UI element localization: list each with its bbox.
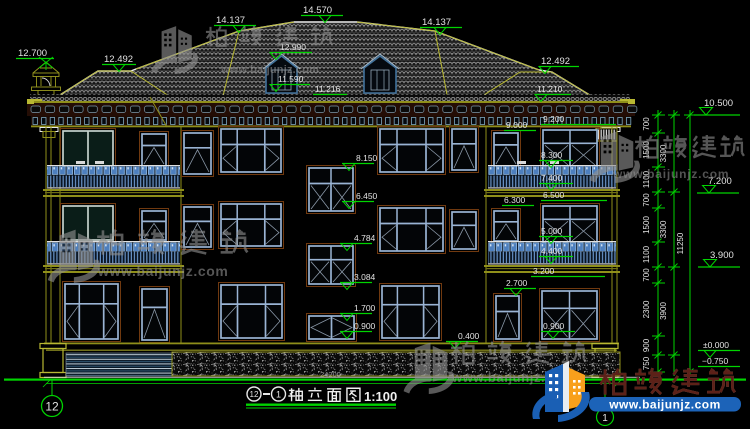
svg-text:12: 12: [45, 400, 59, 414]
svg-text:1100: 1100: [642, 245, 651, 263]
svg-text:12: 12: [250, 390, 259, 399]
svg-text:11.210: 11.210: [537, 84, 563, 94]
svg-text:5.000: 5.000: [541, 226, 563, 236]
svg-text:700: 700: [642, 193, 651, 207]
svg-text:www.baijunjz.com: www.baijunjz.com: [220, 64, 319, 76]
svg-text:3900: 3900: [659, 302, 668, 320]
svg-text:1:100: 1:100: [364, 389, 397, 404]
svg-text:0.900: 0.900: [543, 321, 565, 331]
svg-text:750: 750: [642, 356, 651, 370]
svg-text:11250: 11250: [676, 232, 685, 254]
svg-text:12.492: 12.492: [104, 54, 133, 65]
svg-text:14.570: 14.570: [303, 5, 332, 16]
svg-text:4.400: 4.400: [541, 246, 563, 256]
svg-text:3.084: 3.084: [354, 272, 376, 282]
svg-text:1: 1: [276, 390, 281, 400]
svg-text:12.700: 12.700: [18, 48, 47, 59]
svg-text:−0.750: −0.750: [702, 356, 729, 366]
svg-text:900: 900: [642, 338, 651, 352]
svg-text:700: 700: [642, 268, 651, 282]
svg-text:2300: 2300: [642, 300, 651, 318]
svg-text:11.216: 11.216: [315, 84, 341, 94]
svg-text:8.300: 8.300: [541, 150, 563, 160]
svg-text:1.700: 1.700: [354, 303, 376, 313]
svg-text:700: 700: [642, 117, 651, 131]
svg-text:9.000: 9.000: [506, 120, 528, 130]
svg-text:0.900: 0.900: [354, 321, 376, 331]
svg-text:www.baijunjz.com: www.baijunjz.com: [608, 398, 721, 412]
svg-text:2.700: 2.700: [506, 278, 528, 288]
svg-text:14.137: 14.137: [216, 15, 245, 26]
svg-text:7.400: 7.400: [541, 173, 563, 183]
svg-text:9.200: 9.200: [543, 114, 565, 124]
svg-text:www.baijunjz.com: www.baijunjz.com: [612, 167, 729, 181]
svg-text:6.450: 6.450: [356, 191, 378, 201]
svg-text:1: 1: [602, 413, 608, 424]
svg-text:±0.000: ±0.000: [703, 340, 729, 350]
svg-text:6.500: 6.500: [543, 190, 565, 200]
svg-text:0.400: 0.400: [458, 331, 480, 341]
svg-text:4.784: 4.784: [354, 233, 376, 243]
svg-text:www.baijunjz.com: www.baijunjz.com: [97, 263, 228, 279]
svg-text:3300: 3300: [659, 220, 668, 238]
svg-text:6.300: 6.300: [504, 195, 526, 205]
svg-text:3.200: 3.200: [533, 266, 555, 276]
svg-text:1500: 1500: [642, 216, 651, 234]
svg-text:12.492: 12.492: [541, 56, 570, 67]
svg-text:14.137: 14.137: [422, 17, 451, 28]
svg-text:8.150: 8.150: [356, 153, 378, 163]
